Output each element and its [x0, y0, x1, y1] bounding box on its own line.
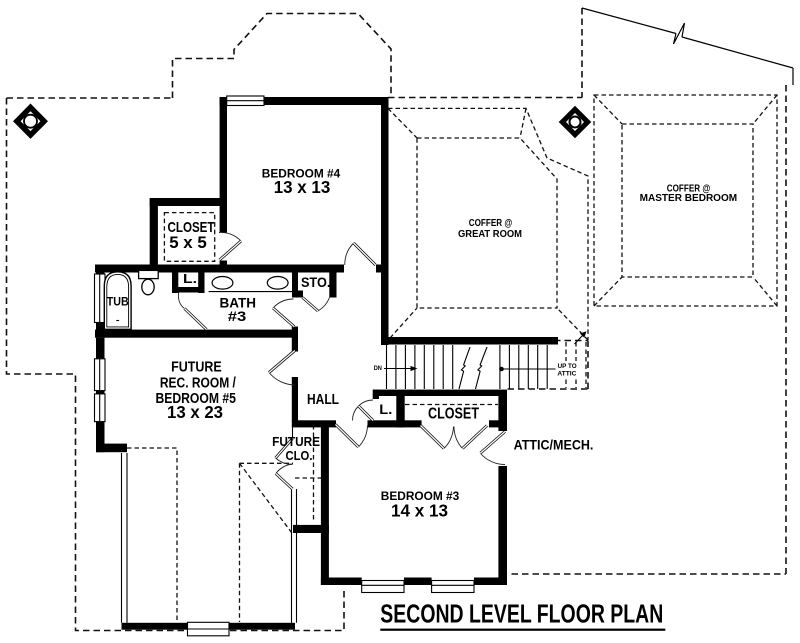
svg-text:ATTIC: ATTIC: [557, 371, 576, 378]
svg-text:DN: DN: [374, 365, 383, 372]
svg-text:#3: #3: [228, 308, 247, 324]
svg-text:GREAT ROOM: GREAT ROOM: [458, 229, 522, 240]
svg-text:CLO.: CLO.: [286, 448, 313, 463]
svg-text:STO.: STO.: [301, 275, 331, 290]
svg-text:FUTURE: FUTURE: [272, 434, 320, 449]
svg-text:HALL: HALL: [307, 391, 339, 408]
svg-text:L.: L.: [183, 272, 197, 286]
svg-text:13 x 13: 13 x 13: [274, 177, 331, 197]
svg-text:FUTURE: FUTURE: [171, 360, 222, 376]
svg-text:TUB: TUB: [107, 297, 129, 309]
svg-text:CLOSET: CLOSET: [428, 405, 480, 422]
svg-text:13 x 23: 13 x 23: [167, 402, 223, 422]
svg-text:14 x 13: 14 x 13: [391, 500, 448, 520]
svg-text:L.: L.: [379, 402, 392, 417]
svg-text:REC. ROOM /: REC. ROOM /: [160, 375, 236, 391]
svg-text:SECOND LEVEL FLOOR PLAN: SECOND LEVEL FLOOR PLAN: [380, 601, 663, 629]
svg-text:ATTIC/MECH.: ATTIC/MECH.: [514, 437, 594, 453]
svg-text:UP TO: UP TO: [558, 363, 577, 370]
svg-text:COFFER @: COFFER @: [469, 218, 513, 229]
svg-text:MASTER BEDROOM: MASTER BEDROOM: [640, 193, 738, 204]
svg-text:5 x 5: 5 x 5: [169, 233, 207, 252]
